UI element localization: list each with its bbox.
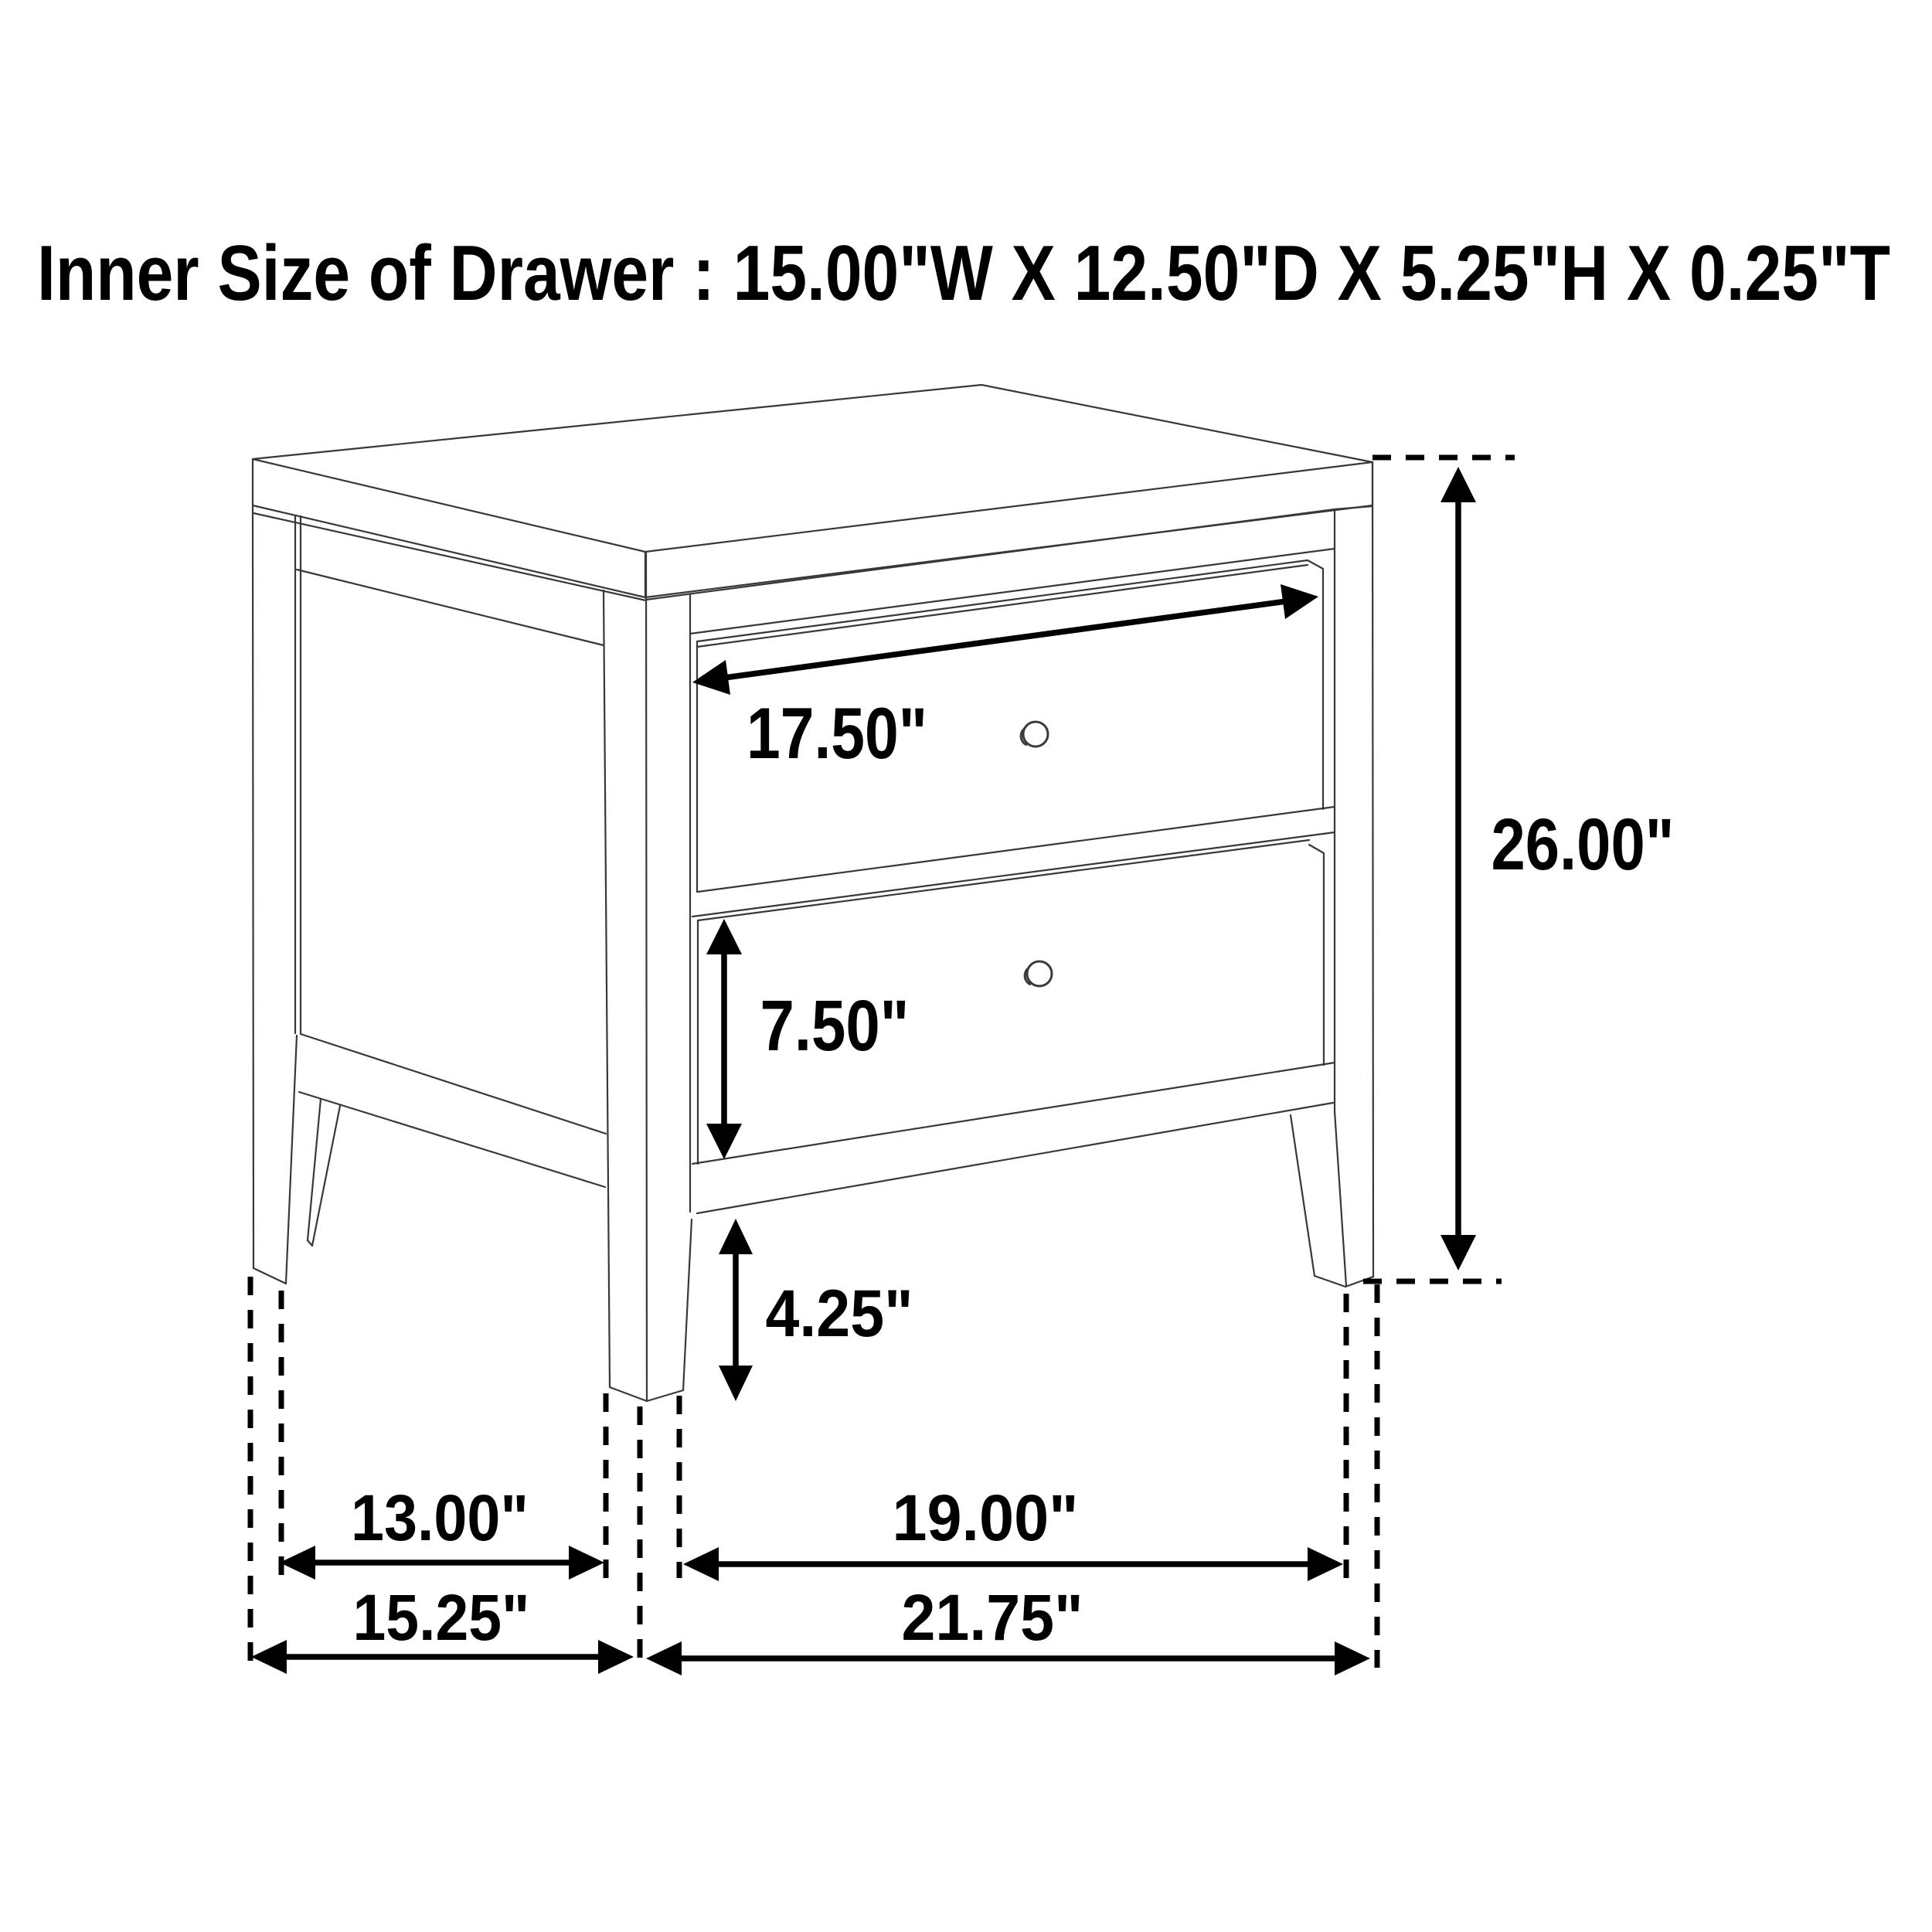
svg-text:7.50": 7.50" <box>760 985 910 1066</box>
svg-text:17.50": 17.50" <box>747 692 927 774</box>
svg-text:Inner Size of Drawer : 15.00"W: Inner Size of Drawer : 15.00"W X 12.50"D… <box>37 230 1890 317</box>
svg-text:21.75": 21.75" <box>902 1581 1083 1654</box>
svg-text:26.00": 26.00" <box>1492 804 1675 886</box>
svg-text:19.00": 19.00" <box>893 1481 1079 1554</box>
svg-text:4.25": 4.25" <box>766 1277 913 1351</box>
svg-text:13.00": 13.00" <box>351 1481 529 1554</box>
svg-text:15.25": 15.25" <box>353 1581 530 1654</box>
